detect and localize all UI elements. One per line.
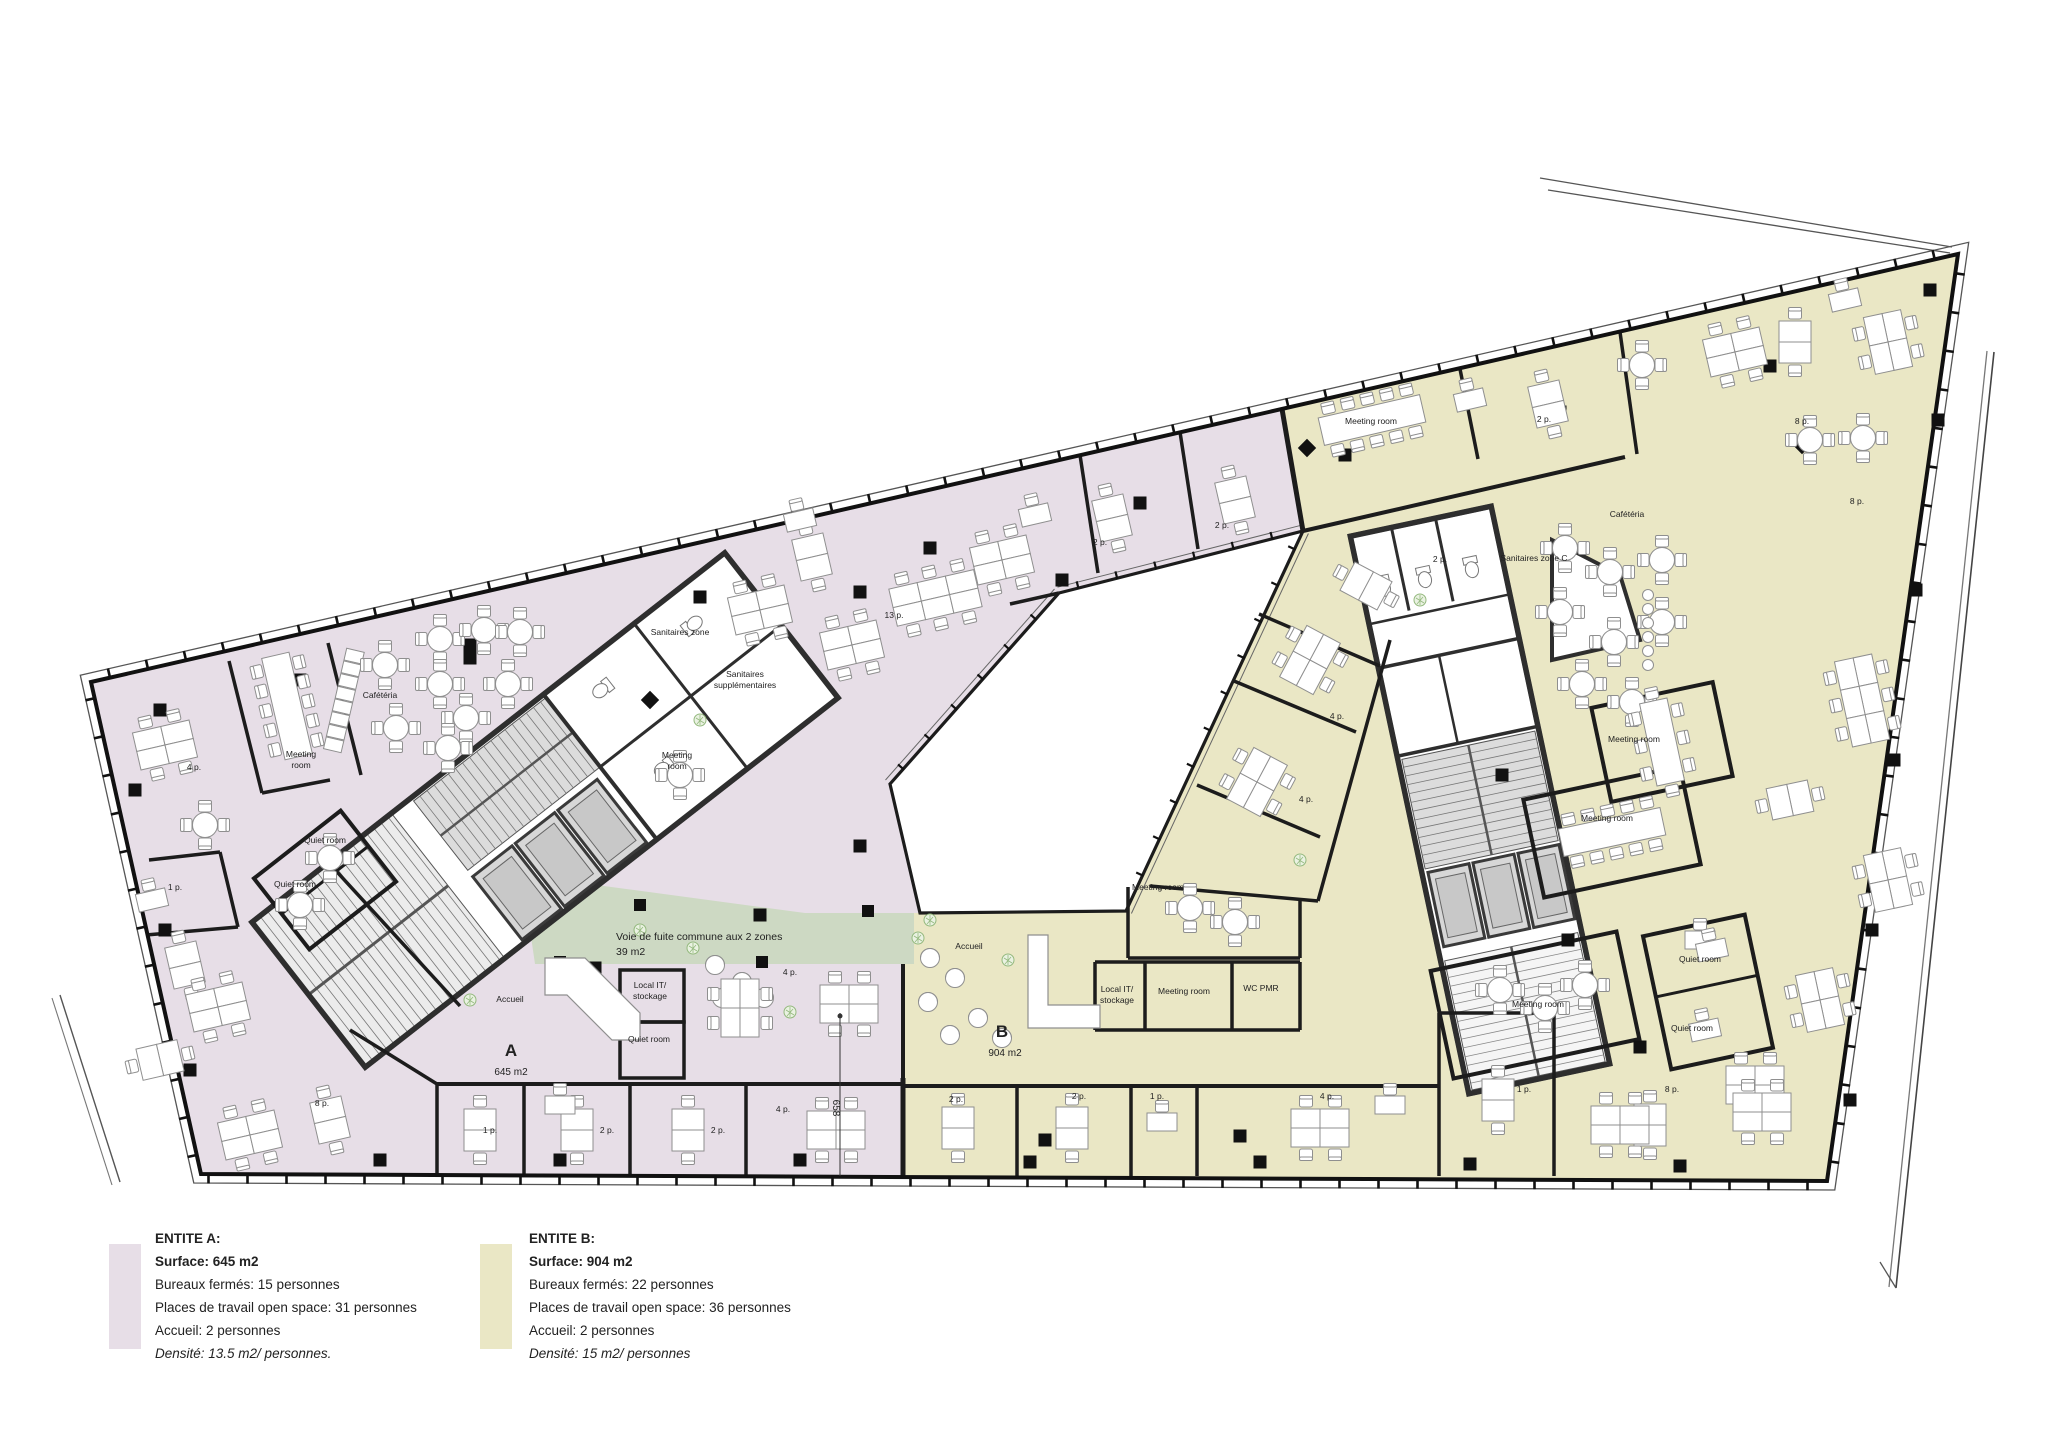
svg-text:2 p.: 2 p.: [1433, 554, 1447, 564]
svg-text:4 p.: 4 p.: [1320, 1091, 1334, 1101]
svg-text:904 m2: 904 m2: [988, 1048, 1022, 1059]
svg-text:Meeting room: Meeting room: [1608, 734, 1660, 744]
svg-text:Local IT/: Local IT/: [634, 980, 667, 990]
svg-text:Quiet room: Quiet room: [1671, 1023, 1713, 1033]
svg-text:Accueil: Accueil: [496, 994, 524, 1004]
svg-text:WC PMR: WC PMR: [1243, 983, 1278, 993]
svg-text:Quiet room: Quiet room: [628, 1034, 670, 1044]
svg-text:4 p.: 4 p.: [776, 1104, 790, 1114]
svg-text:1 p.: 1 p.: [168, 882, 182, 892]
svg-text:Accueil: 2 personnes: Accueil: 2 personnes: [155, 1323, 281, 1338]
svg-text:Sanitaires zone C: Sanitaires zone C: [1500, 553, 1567, 563]
svg-text:4 p.: 4 p.: [1299, 794, 1313, 804]
svg-text:1 p.: 1 p.: [1150, 1091, 1164, 1101]
svg-text:Densité: 15 m2/ personnes: Densité: 15 m2/ personnes: [529, 1346, 691, 1361]
svg-text:Bureaux fermés: 22 personnes: Bureaux fermés: 22 personnes: [529, 1277, 714, 1292]
svg-text:B: B: [996, 1022, 1008, 1041]
svg-text:Meeting: Meeting: [286, 749, 317, 759]
svg-text:room: room: [291, 760, 310, 770]
svg-text:ENTITE A:: ENTITE A:: [155, 1231, 221, 1246]
svg-text:Voie de fuite commune aux 2 zo: Voie de fuite commune aux 2 zones: [616, 931, 782, 943]
svg-text:Meeting room: Meeting room: [1158, 986, 1210, 996]
svg-text:Local IT/: Local IT/: [1101, 984, 1134, 994]
svg-text:room: room: [667, 761, 686, 771]
svg-text:2 p.: 2 p.: [949, 1094, 963, 1104]
svg-text:Quiet room: Quiet room: [1679, 954, 1721, 964]
svg-text:Accueil: Accueil: [955, 941, 983, 951]
svg-text:Surface: 645 m2: Surface: 645 m2: [155, 1254, 259, 1269]
svg-text:Quiet room: Quiet room: [274, 879, 316, 889]
svg-text:2 p.: 2 p.: [1093, 537, 1107, 547]
svg-text:8 p.: 8 p.: [1850, 496, 1864, 506]
svg-text:2 p.: 2 p.: [1072, 1091, 1086, 1101]
svg-text:8 p.: 8 p.: [315, 1098, 329, 1108]
svg-text:Meeting room: Meeting room: [1132, 882, 1184, 892]
svg-text:1 p.: 1 p.: [1517, 1084, 1531, 1094]
svg-text:2 p.: 2 p.: [711, 1125, 725, 1135]
svg-text:A: A: [505, 1041, 517, 1060]
svg-text:stockage: stockage: [633, 991, 667, 1001]
svg-text:Bureaux fermés: 15 personnes: Bureaux fermés: 15 personnes: [155, 1277, 340, 1292]
svg-text:Sanitaires: Sanitaires: [726, 669, 764, 679]
svg-text:Sanitaires zone: Sanitaires zone: [651, 627, 710, 637]
svg-text:39 m2: 39 m2: [616, 946, 645, 958]
svg-text:Densité: 13.5 m2/ personnes.: Densité: 13.5 m2/ personnes.: [155, 1346, 331, 1361]
svg-text:Meeting: Meeting: [662, 750, 693, 760]
svg-text:Meeting room: Meeting room: [1581, 813, 1633, 823]
svg-text:2 p.: 2 p.: [600, 1125, 614, 1135]
svg-text:658: 658: [830, 1100, 841, 1117]
svg-text:Quiet room: Quiet room: [304, 835, 346, 845]
svg-text:4 p.: 4 p.: [783, 967, 797, 977]
svg-text:Meeting room: Meeting room: [1512, 999, 1564, 1009]
svg-text:Meeting room: Meeting room: [1345, 416, 1397, 426]
svg-text:2 p.: 2 p.: [1537, 414, 1551, 424]
svg-text:Places de travail open space:: Places de travail open space: 31 personn…: [155, 1300, 417, 1315]
svg-text:ENTITE B:: ENTITE B:: [529, 1231, 595, 1246]
svg-text:Accueil: 2 personnes: Accueil: 2 personnes: [529, 1323, 655, 1338]
svg-text:Surface: 904 m2: Surface: 904 m2: [529, 1254, 633, 1269]
svg-text:Cafétéria: Cafétéria: [363, 690, 398, 700]
svg-text:stockage: stockage: [1100, 995, 1134, 1005]
svg-text:2 p.: 2 p.: [1215, 520, 1229, 530]
svg-text:supplémentaires: supplémentaires: [714, 680, 776, 690]
svg-text:1 p.: 1 p.: [483, 1125, 497, 1135]
svg-text:4 p.: 4 p.: [187, 762, 201, 772]
svg-text:Places de travail open space:: Places de travail open space: 36 personn…: [529, 1300, 791, 1315]
svg-text:645 m2: 645 m2: [494, 1067, 528, 1078]
svg-text:8 p.: 8 p.: [1665, 1084, 1679, 1094]
svg-text:Cafétéria: Cafétéria: [1610, 509, 1645, 519]
svg-text:4 p.: 4 p.: [1330, 711, 1344, 721]
svg-text:8 p.: 8 p.: [1795, 416, 1809, 426]
svg-text:13 p.: 13 p.: [885, 610, 904, 620]
